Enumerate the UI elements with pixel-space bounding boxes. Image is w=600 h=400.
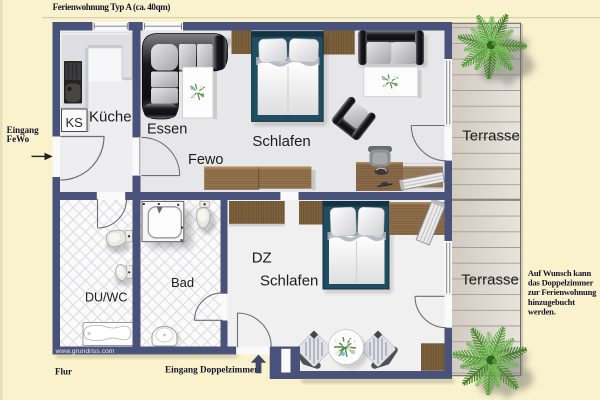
svg-text:KS: KS — [66, 115, 84, 130]
svg-text:Fewo: Fewo — [188, 152, 223, 168]
svg-text:www.grundriss.com: www.grundriss.com — [55, 348, 115, 355]
svg-text:Auf Wunsch kann: Auf Wunsch kann — [528, 268, 592, 278]
svg-text:Flur: Flur — [55, 367, 72, 377]
svg-text:Schlafen: Schlafen — [260, 273, 318, 290]
svg-text:DU/WC: DU/WC — [85, 291, 127, 305]
svg-text:Ferienwohnung Typ A (ca. 40qm): Ferienwohnung Typ A (ca. 40qm) — [53, 2, 171, 12]
svg-text:das Doppelzimmer: das Doppelzimmer — [528, 278, 594, 288]
svg-text:zur Ferienwohnung: zur Ferienwohnung — [528, 287, 597, 297]
svg-text:Küche: Küche — [89, 109, 132, 126]
svg-text:Bad: Bad — [171, 275, 194, 290]
svg-text:Terrasse: Terrasse — [461, 271, 519, 288]
svg-text:DZ: DZ — [252, 250, 272, 267]
svg-text:hinzugebucht: hinzugebucht — [528, 297, 575, 307]
svg-text:Essen: Essen — [147, 122, 187, 138]
svg-text:Eingang Doppelzimmer: Eingang Doppelzimmer — [165, 365, 258, 375]
svg-text:Schlafen: Schlafen — [252, 133, 310, 150]
svg-text:werden.: werden. — [528, 306, 556, 316]
svg-text:Terrasse: Terrasse — [462, 127, 520, 144]
svg-text:FeWo: FeWo — [7, 134, 30, 144]
